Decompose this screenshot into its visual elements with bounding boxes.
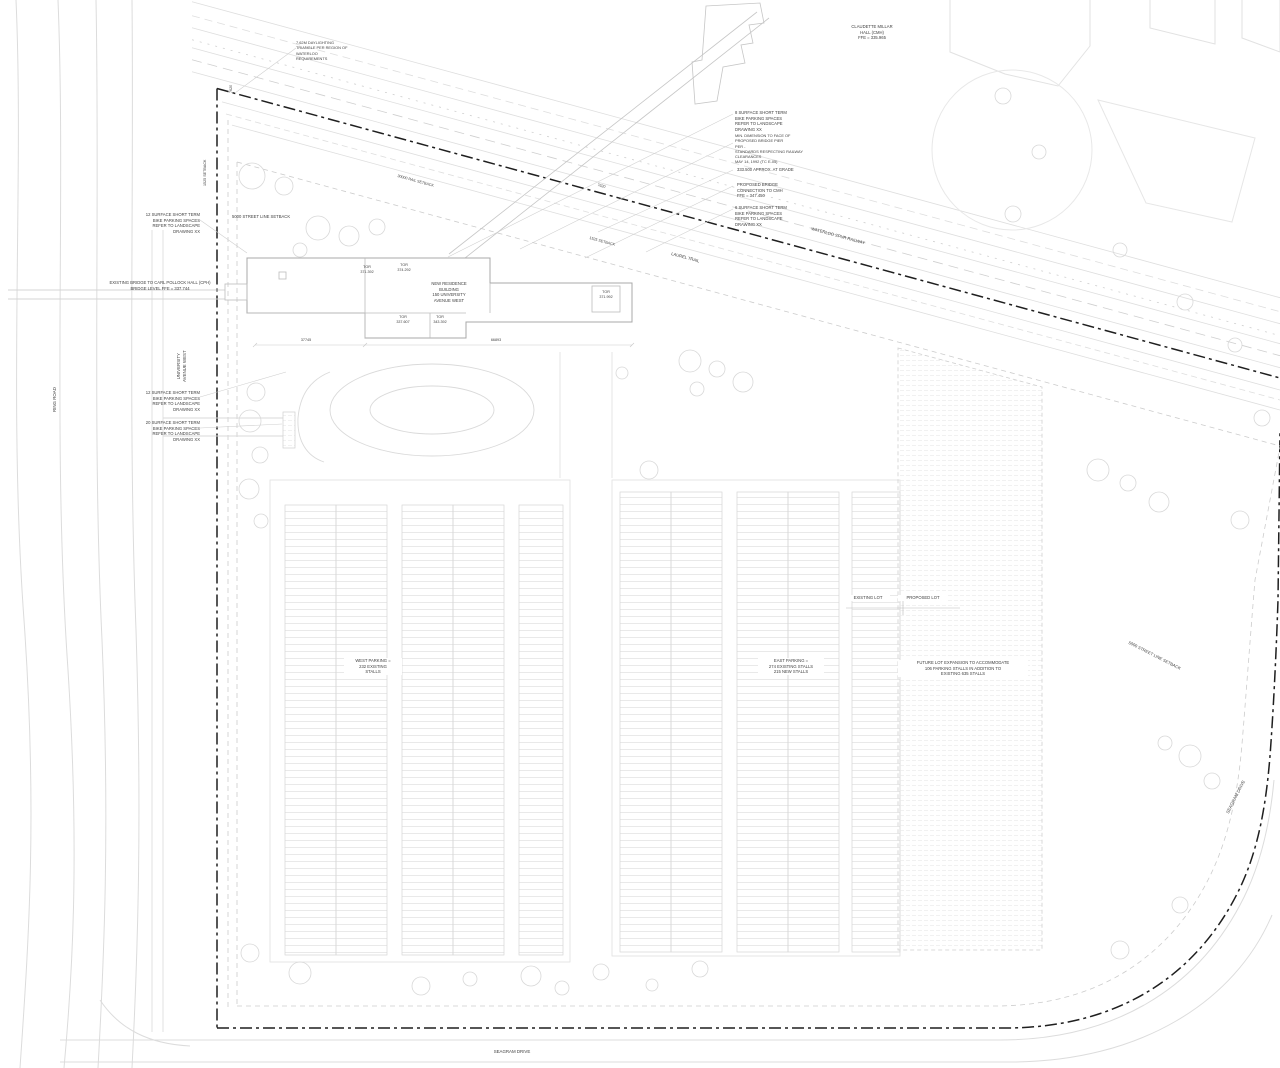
site-plan-sheet: CLAUDETTE MILLAR HALL (CMH) FFE = 335.96… xyxy=(0,0,1280,1068)
at-grade-note: 333.500 APPROX. AT GRADE xyxy=(737,167,809,173)
leader-lines xyxy=(200,48,733,428)
daylight-triangle-note: 7.62M DAYLIGHTING TRIANGLE PER REGION OF… xyxy=(296,40,358,61)
parking-drive-aisles xyxy=(560,352,612,478)
cmh-building-outlines xyxy=(932,0,1280,230)
cph-bridge-lines xyxy=(8,290,225,299)
bike-parking-12-north-note: 12 SURFACE SHORT TERM BIKE PARKING SPACE… xyxy=(140,212,200,235)
future-parking-lot xyxy=(898,348,1042,950)
dimension-7620-left: 7620 xyxy=(229,85,234,93)
setback-1525-left: 1525 SETBACK xyxy=(203,160,208,186)
university-avenue-label: UNIVERSITY AVENUE WEST xyxy=(176,350,188,382)
west-roads xyxy=(16,0,190,1068)
existing-lot-label: EXISTING LOT xyxy=(846,595,890,601)
seagram-drive-bottom-label: SEAGRAM DRIVE xyxy=(482,1049,542,1055)
west-parking-label: WEST PARKING = 232 EXISTING STALLS xyxy=(344,658,402,675)
east-parking-lot xyxy=(612,480,900,956)
bike-parking-12-west-note: 12 SURFACE SHORT TERM BIKE PARKING SPACE… xyxy=(140,390,200,413)
dimension-east: 66893 xyxy=(480,338,512,343)
proposed-lot-label: PROPOSED LOT xyxy=(898,595,948,601)
east-parking-label: EAST PARKING = 274 EXISTING STALLS 215 N… xyxy=(758,658,824,675)
bike-rack-area xyxy=(283,412,295,448)
tor-label-c: TOR 371.992 xyxy=(593,290,619,300)
new-residence-label: NEW RESIDENCE BUILDING 150 UNIVERSITY AV… xyxy=(421,281,477,304)
future-lot-label: FUTURE LOT EXPANSION TO ACCOMMODATE 106 … xyxy=(898,660,1028,677)
proposed-bridge xyxy=(449,3,769,262)
site-plan-canvas xyxy=(0,0,1280,1068)
min-dimension-note: MIN. DIMENSION TO FACE OF PROPOSED BRIDG… xyxy=(735,133,809,165)
west-parking-lot xyxy=(270,480,570,962)
bike-parking-6-note: 6 SURFACE SHORT TERM BIKE PARKING SPACES… xyxy=(735,205,799,228)
cph-bridge-label: EXISTING BRIDGE TO CARL POLLOCK HALL (CP… xyxy=(103,280,217,291)
tor-label-a: TOR 371.392 xyxy=(354,265,380,275)
tor-label-e: TOR 343.392 xyxy=(427,315,453,325)
tor-label-b: TOR 374.292 xyxy=(391,263,417,273)
bike-parking-8-note: 8 SURFACE SHORT TERM BIKE PARKING SPACES… xyxy=(735,110,799,133)
cmh-label: CLAUDETTE MILLAR HALL (CMH) FFE = 335.96… xyxy=(840,24,904,41)
dimension-west: 37745 xyxy=(290,338,322,343)
ring-road-label: RING ROAD xyxy=(52,387,58,412)
tor-label-d: TOR 337.607 xyxy=(390,315,416,325)
bridge-connection-note: PROPOSED BRIDGE CONNECTION TO CMH FFE = … xyxy=(737,182,797,199)
dropoff-loop xyxy=(163,364,534,462)
building-dimension-line xyxy=(253,343,634,347)
street-line-setback-west-label: 5000 STREET LINE SETBACK xyxy=(232,214,308,220)
bike-parking-20-west-note: 20 SURFACE SHORT TERM BIKE PARKING SPACE… xyxy=(140,420,200,443)
